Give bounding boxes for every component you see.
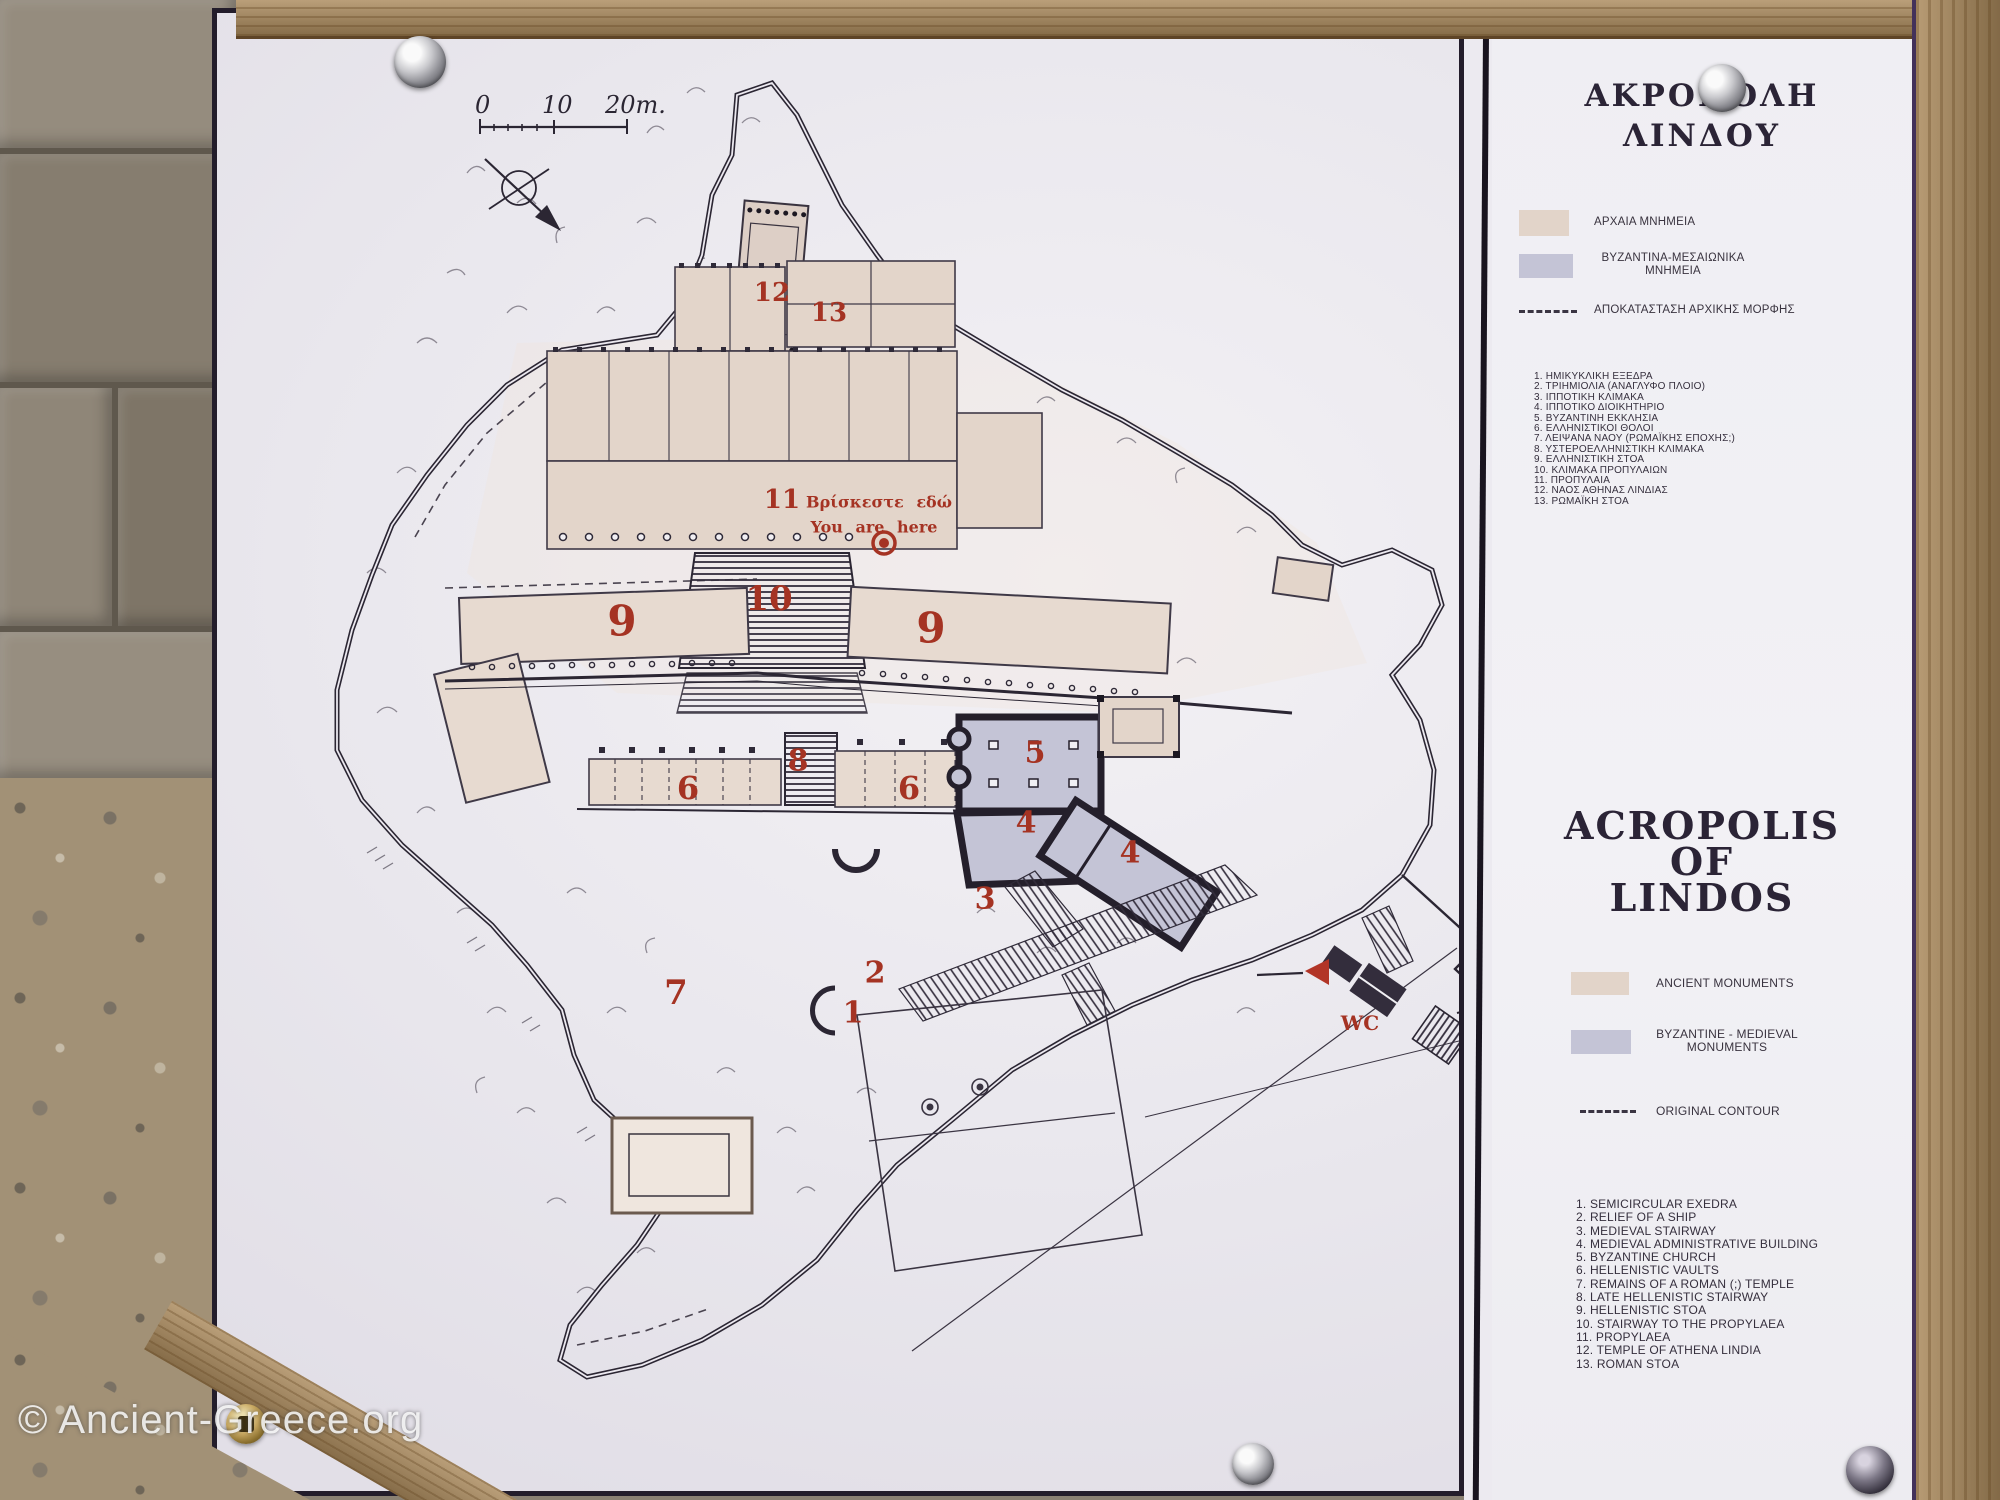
english-list-item: 4. MEDIEVAL ADMINISTRATIVE BUILDING [1576, 1238, 1906, 1251]
english-list-item: 1. SEMICIRCULAR EXEDRA [1576, 1198, 1906, 1211]
map-label-6: 6 [898, 769, 920, 807]
map-label-WC: WC [1341, 1011, 1379, 1035]
english-list-item: 7. REMAINS OF A ROMAN (;) TEMPLE [1576, 1278, 1906, 1291]
english-list-item: 10. STAIRWAY TO THE PROPYLAEA [1576, 1318, 1906, 1331]
english-list-item: 6. HELLENISTIC VAULTS [1576, 1264, 1906, 1277]
legend-row-contour-greek: ΑΠΟΚΑΤΑΣΤΑΣΗ ΑΡΧΙΚΗΣ ΜΟΡΦΗΣ [1492, 296, 1912, 336]
legend-row-byzantine-english: BYZANTINE - MEDIEVAL MONUMENTS [1492, 1024, 1912, 1064]
english-list-item: 9. HELLENISTIC STOA [1576, 1304, 1906, 1317]
map-label-7: 7 [664, 973, 688, 1013]
english-list-item: 2. RELIEF OF A SHIP [1576, 1211, 1906, 1224]
legend-row-byzantine-greek: ΒΥΖΑΝΤΙΝΑ-ΜΕΣΑΙΩΝΙΚΑ ΜΝΗΜΕΙΑ [1492, 248, 1912, 288]
watermark: © Ancient-Greece.org [18, 1398, 423, 1443]
screw-bottom-right [1846, 1446, 1894, 1494]
greek-monument-list: 1. ΗΜΙΚΥΚΛΙΚΗ ΕΞΕΔΡΑ2. ΤΡΙΗΜΙΟΛΙΑ (ΑΝΑΓΛ… [1534, 372, 1874, 507]
greek-list-item: 13. ΡΩΜΑΪΚΗ ΣΤΟΑ [1534, 497, 1874, 507]
map-label-6: 6 [677, 769, 699, 807]
english-list-item: 13. ROMAN STOA [1576, 1358, 1906, 1371]
you-are-here-english: You are here [811, 518, 938, 537]
legend-label: ΑΡΧΑΙΑ ΜΝΗΜΕΙΑ [1594, 216, 1695, 228]
stone-block [0, 154, 236, 382]
map-number-labels: 12131110998665443217WC [217, 13, 1459, 1491]
wood-frame-top [236, 0, 2000, 39]
stone-block [0, 632, 236, 778]
stone-block [0, 0, 236, 148]
screw-top-left [394, 36, 446, 88]
byzantine-monuments-swatch [1519, 254, 1573, 278]
map-label-12: 12 [754, 278, 790, 308]
greek-title-line2: ΛΙΝΔΟΥ [1492, 116, 1912, 156]
english-title: ACROPOLIS OF LINDOS [1492, 808, 1912, 916]
map-label-4: 4 [1120, 836, 1141, 871]
map-label-8: 8 [788, 744, 809, 779]
stone-wall-background [0, 0, 236, 778]
map-label-1: 1 [843, 996, 864, 1031]
legend-row-ancient-english: ANCIENT MONUMENTS [1492, 966, 1912, 1006]
byzantine-monuments-swatch [1571, 1030, 1631, 1054]
english-list-item: 3. MEDIEVAL STAIRWAY [1576, 1225, 1906, 1238]
map-label-9: 9 [916, 604, 945, 653]
map-panel: 0 10 20m. [212, 8, 1464, 1496]
you-are-here-greek: Βρίσκεστε εδώ [806, 493, 952, 512]
legend-label: ORIGINAL CONTOUR [1656, 1104, 1780, 1118]
legend-panel: ΑΚΡΟΠΟΛΗ ΛΙΝΔΟΥ ΑΡΧΑΙΑ ΜΝΗΜΕΙΑ ΒΥΖΑΝΤΙΝΑ… [1492, 0, 1916, 1500]
legend-label: ΑΠΟΚΑΤΑΣΤΑΣΗ ΑΡΧΙΚΗΣ ΜΟΡΦΗΣ [1594, 304, 1795, 316]
english-list-item: 8. LATE HELLENISTIC STAIRWAY [1576, 1291, 1906, 1304]
legend-row-ancient-greek: ΑΡΧΑΙΑ ΜΝΗΜΕΙΑ [1492, 206, 1912, 246]
map-label-11: 11 [764, 485, 800, 515]
stone-block [0, 388, 112, 626]
english-list-item: 12. TEMPLE OF ATHENA LINDIA [1576, 1344, 1906, 1357]
map-label-5: 5 [1025, 736, 1046, 771]
dashed-contour-swatch [1519, 310, 1577, 313]
legend-row-contour-english: ORIGINAL CONTOUR [1492, 1096, 1912, 1136]
map-label-13: 13 [811, 298, 847, 328]
ancient-monuments-swatch [1519, 210, 1569, 236]
legend-label: ANCIENT MONUMENTS [1656, 976, 1794, 990]
map-label-2: 2 [865, 956, 886, 991]
english-title-line3: LINDOS [1492, 880, 1912, 916]
map-label-3: 3 [975, 882, 996, 917]
dashed-contour-swatch [1580, 1110, 1636, 1113]
map-label-9: 9 [607, 597, 636, 646]
english-monument-list: 1. SEMICIRCULAR EXEDRA2. RELIEF OF A SHI… [1576, 1198, 1906, 1371]
screw-bottom-center [1232, 1443, 1274, 1485]
ancient-monuments-swatch [1571, 972, 1629, 995]
screw-top-right [1698, 64, 1746, 112]
english-list-item: 5. BYZANTINE CHURCH [1576, 1251, 1906, 1264]
wood-frame-right [1912, 0, 2000, 1500]
photo-scene: 0 10 20m. [0, 0, 2000, 1500]
legend-label: ΒΥΖΑΝΤΙΝΑ-ΜΕΣΑΙΩΝΙΚΑ ΜΝΗΜΕΙΑ [1588, 252, 1758, 278]
english-list-item: 11. PROPYLAEA [1576, 1331, 1906, 1344]
map-label-10: 10 [745, 579, 792, 619]
legend-label: BYZANTINE - MEDIEVAL MONUMENTS [1652, 1028, 1802, 1054]
map-label-4: 4 [1016, 806, 1037, 841]
